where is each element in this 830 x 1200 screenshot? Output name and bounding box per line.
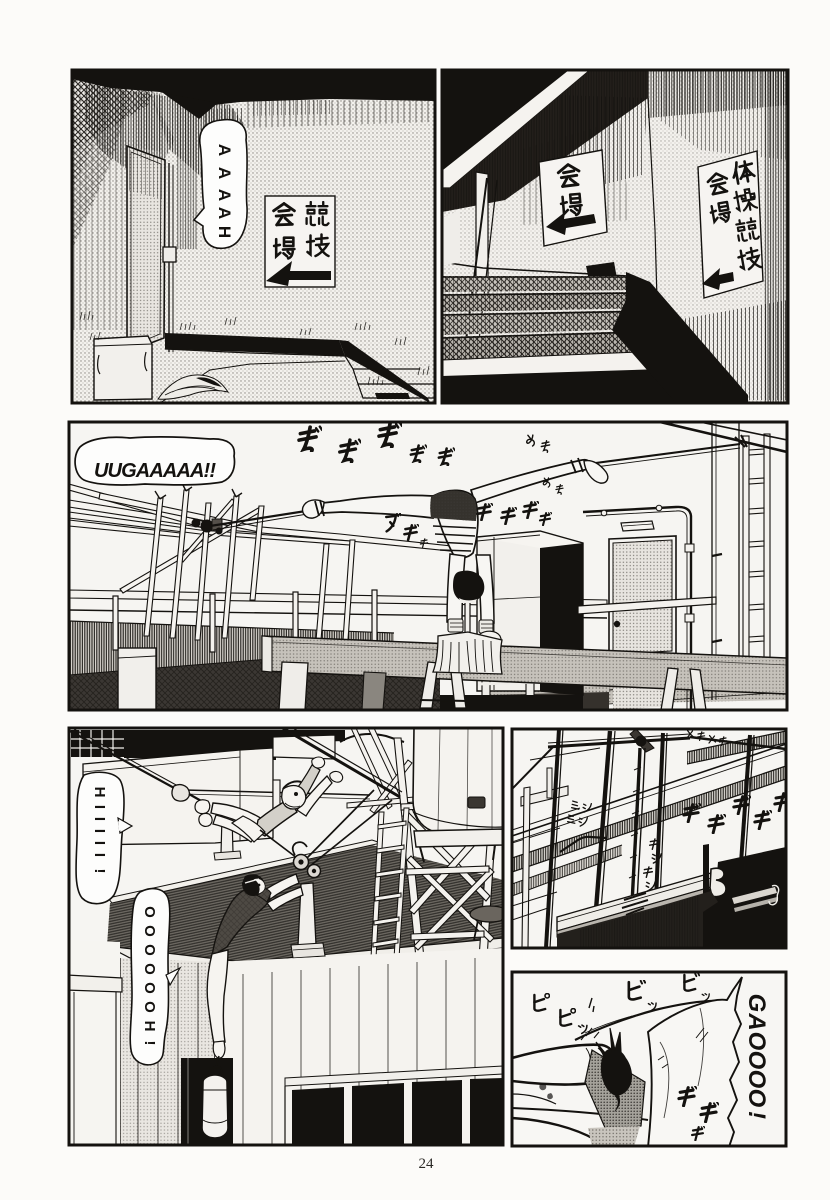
svg-text:G: G	[743, 994, 770, 1013]
svg-text:O: O	[743, 1070, 770, 1089]
svg-text:I: I	[91, 805, 108, 809]
svg-text:O: O	[141, 1001, 158, 1013]
svg-text:H: H	[141, 1021, 158, 1032]
svg-text:A: A	[215, 189, 234, 201]
svg-text:!: !	[141, 1041, 158, 1046]
svg-text:I: I	[91, 841, 108, 845]
svg-text:I: I	[91, 829, 108, 833]
svg-text:O: O	[743, 1051, 770, 1070]
svg-text:O: O	[141, 925, 158, 937]
svg-text:O: O	[141, 963, 158, 975]
svg-text:O: O	[141, 982, 158, 994]
svg-text:H: H	[91, 787, 108, 798]
svg-text:O: O	[743, 1032, 770, 1051]
svg-text:24: 24	[419, 1156, 435, 1172]
svg-text:A: A	[215, 144, 234, 156]
svg-text:O: O	[743, 1089, 770, 1108]
svg-text:O: O	[141, 944, 158, 956]
svg-text:O: O	[141, 906, 158, 918]
svg-text:H: H	[215, 226, 234, 238]
svg-text:A: A	[743, 1012, 770, 1030]
svg-text:I: I	[91, 853, 108, 857]
svg-text:A: A	[215, 207, 234, 219]
svg-text:UUGAAAAA!!: UUGAAAAA!!	[94, 460, 216, 482]
svg-text:!: !	[743, 1111, 770, 1119]
svg-text:A: A	[215, 167, 234, 179]
svg-text:I: I	[91, 817, 108, 821]
svg-text:!: !	[91, 869, 108, 874]
